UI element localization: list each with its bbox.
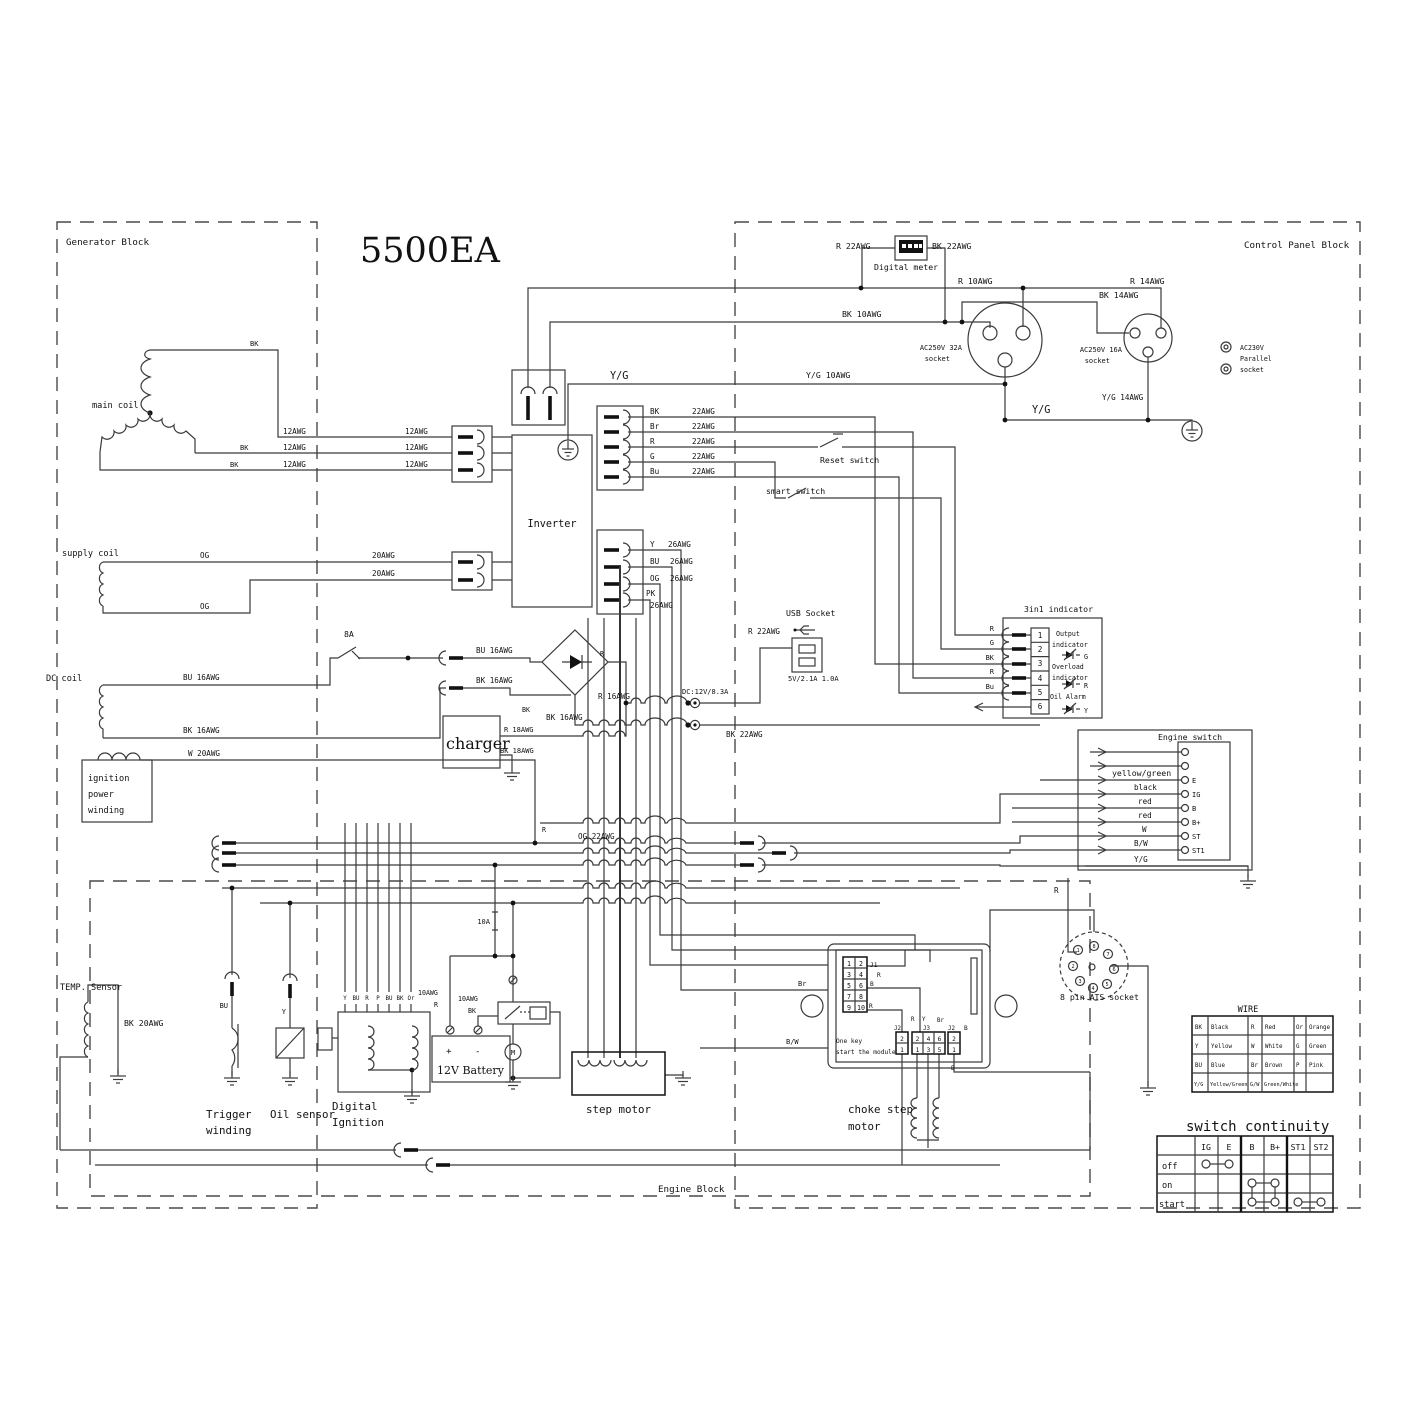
svg-text:Pink: Pink	[1309, 1063, 1323, 1069]
choke-step-motor	[911, 1098, 939, 1140]
oil-sensor-ground	[282, 1071, 298, 1085]
ign-pin-bk: BK	[397, 996, 404, 1002]
ats-pin-2: 2	[1071, 964, 1074, 970]
fuse-10a-label: 10A	[477, 918, 490, 926]
es-st: ST	[1192, 833, 1201, 841]
batt-bk-r: BK	[468, 1007, 476, 1015]
step-motor	[572, 1052, 665, 1095]
oil-sensor-label: Oil sensor	[270, 1108, 336, 1121]
ats-pin-1: 1	[1076, 948, 1079, 954]
module-pin-8: 8	[859, 993, 863, 1001]
continuity-cells: IG E B B+ ST1 ST2 off on start	[1159, 1142, 1328, 1210]
svg-text:BK: BK	[1195, 1025, 1202, 1031]
svg-text:start: start	[1159, 1200, 1185, 1210]
inverter-ground	[558, 440, 578, 460]
es-b: B	[1192, 805, 1196, 813]
digital-ignition-label2: Ignition	[332, 1116, 384, 1129]
conn-y-label: Y	[922, 1017, 926, 1023]
bk14awg-label: BK 14AWG	[1099, 290, 1139, 300]
ind-wire-r2: R	[990, 668, 995, 676]
ign-pin-bu2: BU	[386, 996, 393, 1002]
ac-wire-r: R	[650, 437, 655, 446]
sig-wire-y: Y	[650, 540, 655, 549]
junction-dots	[147, 286, 1150, 1081]
module-pin-5: 5	[847, 982, 851, 990]
svg-text:Green/White: Green/White	[1264, 1082, 1298, 1088]
temp-sensor-ground	[110, 1069, 126, 1083]
w20awg-label: W 20AWG	[188, 749, 220, 758]
ats-label: 8 pin ATS socket	[1060, 992, 1139, 1002]
svg-text:ST2: ST2	[1314, 1142, 1329, 1152]
svg-text:Or: Or	[1296, 1025, 1303, 1031]
j3-pin-4: 4	[927, 1036, 931, 1043]
sig-wire-bu-gauge: 26AWG	[670, 557, 693, 566]
dc-coil-bk16-label: BK 16AWG	[183, 726, 220, 735]
socket16-label: AC250V 16A	[1080, 346, 1123, 354]
es-wire-red2: red	[1138, 811, 1152, 820]
awg12-l1: 12AWG	[283, 427, 306, 436]
digital-ignition-label1: Digital	[332, 1100, 378, 1113]
dc-coil-bu16-label: BU 16AWG	[183, 673, 220, 682]
es-wire-black: black	[1134, 783, 1157, 792]
yg-label-inverter: Y/G	[610, 371, 628, 382]
parallel-socket-label2: Parallel	[1240, 355, 1272, 363]
page-title: 5500EA	[360, 231, 501, 271]
bk16-center-label: BK 16AWG	[546, 713, 583, 722]
j3-pin-5: 5	[938, 1047, 942, 1054]
schematic-page: 5500EA Generator Block Control Panel Blo…	[0, 0, 1416, 1416]
start-relay	[498, 976, 550, 1024]
ind-wire-bu: Bu	[986, 683, 994, 691]
inverter-top-connector	[512, 370, 565, 425]
svg-text:G/W: G/W	[1250, 1082, 1260, 1088]
bw-wire-label: B/W	[786, 1038, 799, 1046]
es-wire-red1: red	[1138, 797, 1152, 806]
es-wire-yg: Y/G	[1134, 855, 1148, 864]
bk20awg-label: BK 20AWG	[124, 1018, 164, 1028]
reset-switch-label: Reset switch	[820, 455, 879, 465]
socket-32a	[968, 303, 1042, 377]
svg-text:B+: B+	[1270, 1142, 1280, 1152]
ats-pin-3: 3	[1078, 979, 1081, 985]
meter-r22-label: R 22AWG	[836, 241, 871, 251]
sig-wire-og: OG	[650, 574, 660, 583]
one-key-start-module	[801, 944, 1017, 1068]
batt-awg10-r: 10AWG	[458, 995, 478, 1003]
onekey-label1: One key	[836, 1038, 862, 1045]
ind-g: G	[1084, 653, 1088, 661]
digital-meter-label: Digital meter	[874, 262, 938, 272]
smart-switch-label: smart switch	[766, 486, 825, 496]
r-mid-label: R	[1054, 886, 1059, 895]
j2-left-label: J2	[894, 1026, 901, 1032]
j3-pin-1: 1	[916, 1047, 920, 1054]
ind-pin-1: 1	[1038, 631, 1043, 640]
awg12-r3: 12AWG	[405, 460, 428, 469]
engine-switch-ground	[1240, 874, 1256, 888]
es-st1: ST1	[1192, 847, 1205, 855]
ign-pin-or: Or	[408, 996, 415, 1002]
j2-right-label: J2	[948, 1026, 955, 1032]
module-j1: J1	[870, 962, 878, 969]
j3-label: J3	[923, 1026, 930, 1032]
es-bplus: B+	[1192, 819, 1200, 827]
ignition-label3: winding	[88, 806, 124, 816]
ign-pin-y: Y	[343, 996, 347, 1002]
j3-pin-3: 3	[927, 1047, 931, 1054]
choke-label1: choke step	[848, 1103, 913, 1116]
r14awg-label: R 14AWG	[1130, 276, 1165, 286]
ignition-label2: power	[88, 790, 114, 800]
trigger-ground	[224, 1071, 240, 1085]
svg-text:Brown: Brown	[1265, 1063, 1282, 1069]
sig-wire-pk: PK	[646, 589, 656, 598]
svg-text:G: G	[1296, 1044, 1300, 1050]
sig-wire-bu: BU	[650, 557, 660, 566]
og-bot-label: OG	[200, 602, 210, 611]
main-bk1-label: BK	[250, 340, 259, 348]
ind-output2: indicator	[1052, 641, 1088, 649]
awg12-l2: 12AWG	[283, 443, 306, 452]
main-coil-label: main coil	[92, 401, 139, 411]
parallel-socket	[1221, 342, 1231, 374]
ats-ground	[1140, 1081, 1156, 1095]
conn-br-label: Br	[937, 1018, 944, 1024]
svg-text:IG: IG	[1201, 1142, 1211, 1152]
b-below-label: B	[951, 1065, 955, 1072]
es-wire-bw: B/W	[1134, 839, 1148, 848]
sig-wire-og-gauge: 26AWG	[670, 574, 693, 583]
batt-r-l: R	[434, 1001, 438, 1009]
parallel-socket-label3: socket	[1240, 366, 1264, 374]
ind-pin-2: 2	[1038, 645, 1043, 654]
ign-pin-bu: BU	[353, 996, 360, 1002]
ignition-ground	[404, 1089, 420, 1103]
panel-ground	[1182, 421, 1202, 441]
usb-r22-label: R 22AWG	[748, 627, 780, 636]
battery-minus: -	[475, 1046, 481, 1057]
starter-ground	[505, 1075, 521, 1089]
svg-text:Red: Red	[1265, 1025, 1275, 1031]
ats-pin-5: 5	[1105, 982, 1108, 988]
wire-table-title: WIRE	[1238, 1005, 1259, 1015]
text-labels: 5500EA Generator Block Control Panel Blo…	[46, 231, 1350, 1210]
j3-pin-6: 6	[938, 1036, 942, 1043]
svg-text:P: P	[1296, 1063, 1300, 1069]
ind-oil-alarm: Oil Alarm	[1050, 693, 1086, 701]
r16-label: R 16AWG	[598, 692, 630, 701]
inverter-label: Inverter	[527, 519, 576, 530]
engine-switch-label: Engine switch	[1158, 732, 1222, 742]
components	[82, 236, 1333, 1212]
ind-pin-3: 3	[1038, 659, 1043, 668]
awg20-top-label: 20AWG	[372, 551, 395, 560]
ign-pin-r: R	[365, 996, 369, 1002]
j2r-pin-2: 2	[952, 1036, 956, 1043]
module-pin-2: 2	[859, 960, 863, 968]
svg-text:B: B	[1250, 1142, 1255, 1152]
ind-wire-g: G	[990, 639, 994, 647]
supply-coil-connector	[452, 552, 492, 590]
battery-label: 12V Battery	[437, 1064, 505, 1077]
supply-coil-label: supply coil	[62, 549, 119, 559]
module-pin-10: 10	[857, 1004, 865, 1012]
svg-text:Yellow: Yellow	[1211, 1044, 1232, 1050]
dc-rating-label: DC:12V/8.3A	[682, 688, 729, 696]
trigger-bu-label: BU	[220, 1002, 228, 1010]
ind-pin-6: 6	[1038, 702, 1043, 711]
es-e: E	[1192, 777, 1196, 785]
indicator-title: 3in1 indicator	[1024, 604, 1093, 614]
og-top-label: OG	[200, 551, 210, 560]
bridge-rectifier	[542, 630, 608, 695]
yg10awg-label: Y/G 10AWG	[806, 370, 850, 380]
r10awg-label: R 10AWG	[958, 276, 993, 286]
svg-text:W: W	[1251, 1044, 1255, 1050]
generator-block-label: Generator Block	[66, 237, 149, 248]
svg-text:E: E	[1227, 1142, 1232, 1152]
ind-overload2: indicator	[1052, 674, 1088, 682]
main-bk3-label: BK	[230, 461, 239, 469]
ac-wire-r-gauge: 22AWG	[692, 437, 715, 446]
bk-small-label: BK	[522, 706, 530, 714]
socket32-label2: socket	[925, 355, 950, 363]
j2l-pin-2: 2	[900, 1036, 904, 1043]
digital-ignition	[318, 1012, 430, 1092]
dc-coil-label: DC coil	[46, 674, 82, 684]
charger-ground	[504, 766, 520, 780]
yg14awg-label: Y/G 14AWG	[1102, 393, 1144, 402]
svg-text:White: White	[1265, 1044, 1283, 1050]
trigger-label1: Trigger	[206, 1108, 252, 1121]
continuity-title: switch continuity	[1186, 1119, 1329, 1135]
module-pin-9: 9	[847, 1004, 851, 1012]
digital-meter	[895, 236, 927, 260]
module-b: B	[870, 981, 874, 988]
dc-coil-winding	[99, 685, 103, 738]
dc-bk22-label: BK 22AWG	[726, 730, 763, 739]
svg-text:ST1: ST1	[1291, 1142, 1306, 1152]
parallel-socket-label1: AC230V	[1240, 344, 1264, 352]
svg-text:BU: BU	[1195, 1063, 1202, 1069]
svg-text:Y/G: Y/G	[1194, 1082, 1203, 1088]
br-wire-label: Br	[798, 980, 806, 988]
main-coil-winding	[141, 350, 150, 413]
battery-plus: +	[446, 1046, 452, 1057]
ignition-winding-coil	[98, 753, 140, 760]
sig-wire-pk-gauge: 26AWG	[650, 601, 673, 610]
trigger-label2: winding	[206, 1124, 252, 1137]
ind-r: R	[1084, 682, 1088, 690]
es-wire-yellow-green: yellow/green	[1112, 768, 1171, 778]
socket16-label2: socket	[1085, 357, 1110, 365]
socket-16a	[1124, 314, 1172, 362]
ind-wire-r: R	[990, 625, 995, 633]
module-pin-4: 4	[859, 971, 863, 979]
step-motor-ground	[675, 1071, 691, 1085]
module-r: R	[877, 972, 881, 979]
batt-awg10-l: 10AWG	[418, 989, 438, 997]
temp-sensor-coil	[84, 1002, 88, 1057]
dc-output-terminals	[690, 698, 699, 729]
module-pin-3: 3	[847, 971, 851, 979]
awg12-r2: 12AWG	[405, 443, 428, 452]
usb-socket	[792, 626, 822, 672]
svg-text:Green: Green	[1309, 1044, 1326, 1050]
ac-wire-bk: BK	[650, 407, 660, 416]
sig-wire-y-gauge: 26AWG	[668, 540, 691, 549]
spark-plug	[318, 1028, 332, 1050]
ind-y: Y	[1084, 707, 1088, 715]
meter-bk22-label: BK 22AWG	[932, 241, 972, 251]
ind-output: Output	[1056, 630, 1080, 638]
awg20-bot-label: 20AWG	[372, 569, 395, 578]
temp-sensor-label: TEMP. Sensor	[60, 983, 122, 993]
ignition-label1: ignition	[88, 774, 129, 784]
svg-text:off: off	[1162, 1162, 1178, 1172]
onekey-label2: start the module	[836, 1049, 896, 1056]
ats-pin-8: 8	[1092, 944, 1095, 950]
usb-rating-label: 5V/2.1A 1.0A	[788, 675, 839, 683]
awg12-l3: 12AWG	[283, 460, 306, 469]
conn-bu16-label: BU 16AWG	[476, 646, 513, 655]
svg-text:Orange: Orange	[1309, 1025, 1330, 1031]
ind-wire-bk: BK	[986, 654, 995, 662]
r-og-label: R	[542, 826, 546, 834]
starter-m: M	[511, 1049, 515, 1057]
es-wire-w: W	[1142, 825, 1147, 834]
control-block-label: Control Panel Block	[1244, 240, 1350, 251]
j3-pin-2: 2	[916, 1036, 920, 1043]
yg-label-socket: Y/G	[1032, 405, 1050, 416]
svg-text:Black: Black	[1211, 1025, 1229, 1031]
step-motor-label: step motor	[586, 1103, 652, 1116]
wiring-diagram: 5500EA Generator Block Control Panel Blo…	[0, 0, 1416, 1416]
svg-text:R: R	[1251, 1025, 1255, 1031]
ac-wire-br: Br	[650, 422, 660, 431]
ac-wire-g-gauge: 22AWG	[692, 452, 715, 461]
ind-overload: Overload	[1052, 663, 1084, 671]
bk10awg-label: BK 10AWG	[842, 309, 882, 319]
ac-wire-g: G	[650, 452, 655, 461]
choke-label2: motor	[848, 1120, 881, 1133]
ac-wire-bk-gauge: 22AWG	[692, 407, 715, 416]
svg-text:on: on	[1162, 1181, 1172, 1191]
conn-r-label: R	[911, 1017, 915, 1023]
svg-text:Br: Br	[1251, 1063, 1258, 1069]
engine-block-label: Engine Block	[658, 1184, 725, 1195]
module-pin-6: 6	[859, 982, 863, 990]
ac-wire-bu-gauge: 22AWG	[692, 467, 715, 476]
socket32-label: AC250V 32A	[920, 344, 963, 352]
j2l-pin-1: 1	[900, 1047, 904, 1054]
ind-pin-4: 4	[1038, 674, 1043, 683]
svg-text:Y: Y	[1195, 1044, 1199, 1050]
ac-wire-bu: Bu	[650, 467, 659, 476]
bk18-label: BK 18AWG	[500, 747, 534, 755]
block-boundaries	[57, 222, 1360, 1208]
r18-label: R 18AWG	[504, 726, 534, 734]
ind-pin-5: 5	[1038, 688, 1043, 697]
svg-text:Blue: Blue	[1211, 1063, 1225, 1069]
conn-b-label: B	[964, 1025, 968, 1032]
ign-pin-p: P	[376, 996, 380, 1002]
fuse-8a-switch	[352, 651, 360, 659]
ats-pin-7: 7	[1106, 952, 1109, 958]
module-pin-1: 1	[847, 960, 851, 968]
module-pin-7: 7	[847, 993, 851, 1001]
conn-bk16-label: BK 16AWG	[476, 676, 513, 685]
og22awg-label: OG 22AWG	[578, 832, 615, 841]
r-small-label: R	[600, 650, 604, 658]
module-r2: R	[869, 1003, 873, 1010]
svg-text:Yellow/Green: Yellow/Green	[1210, 1082, 1247, 1088]
main-bk2-label: BK	[240, 444, 249, 452]
j2r-pin-1: 1	[952, 1047, 956, 1054]
awg12-r1: 12AWG	[405, 427, 428, 436]
es-ig: IG	[1192, 791, 1200, 799]
ac-wire-br-gauge: 22AWG	[692, 422, 715, 431]
fuse-8a-label: 8A	[344, 629, 354, 639]
supply-coil-winding	[99, 562, 103, 606]
ats-pin-6: 6	[1112, 967, 1115, 973]
ats-pin-4: 4	[1091, 986, 1094, 992]
usb-socket-label: USB Socket	[786, 608, 835, 618]
oil-y-label: Y	[282, 1008, 287, 1016]
